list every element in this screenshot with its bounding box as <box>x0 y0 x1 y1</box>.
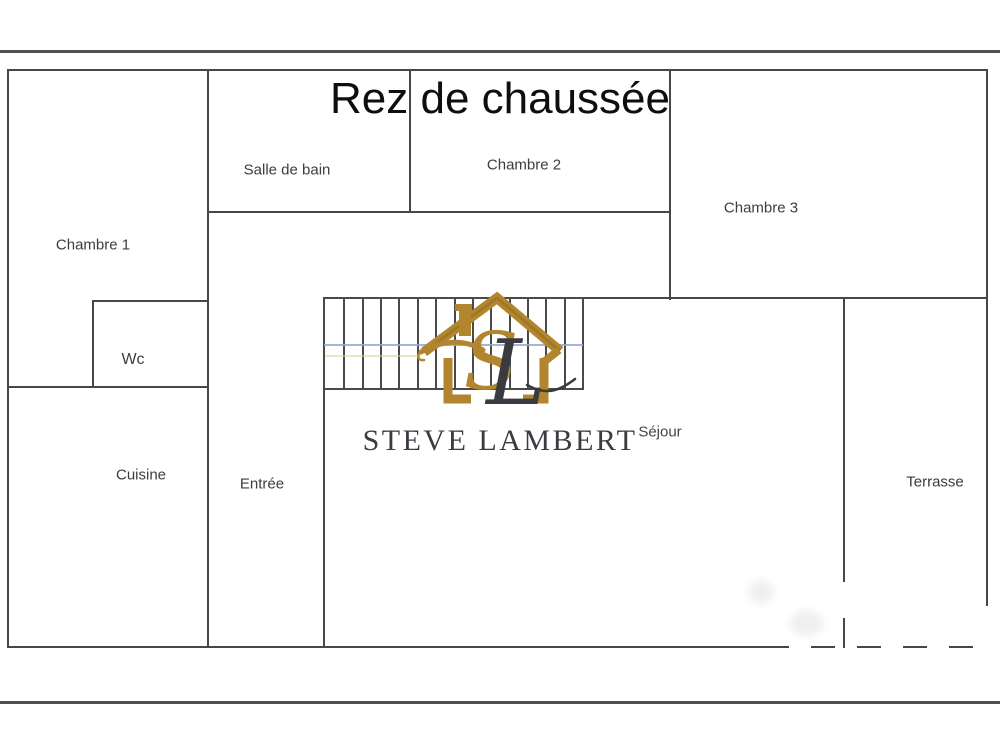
wall-sejour-terrasse-lower <box>843 618 845 648</box>
wall-sdb-bottom <box>207 211 671 213</box>
room-label-chambre-2: Chambre 2 <box>487 157 561 174</box>
wall-chambre1-right <box>207 69 209 648</box>
page-title: Rez de chaussée <box>330 74 670 124</box>
room-label-salle-de-bain: Salle de bain <box>244 162 331 179</box>
brand-name: STEVE LAMBERT <box>363 424 638 458</box>
wall-cuisine-top <box>7 386 209 388</box>
wall-outer-bottom <box>7 646 765 648</box>
wall-chambre3-bottom <box>583 297 988 299</box>
wall-outer-left <box>7 69 9 648</box>
wall-chambre2-chambre3 <box>669 69 671 300</box>
wall-sdb-chambre2 <box>409 69 411 213</box>
room-label-sejour: Séjour <box>638 424 681 441</box>
faded-watermark-blob <box>748 580 774 604</box>
house-logo-icon: S L <box>393 288 607 418</box>
floor-plan-page: Rez de chaussée S L <box>0 0 1000 753</box>
bottom-divider-line <box>0 701 1000 704</box>
room-label-chambre-3: Chambre 3 <box>724 200 798 217</box>
wall-sejour-terrasse-upper <box>843 299 845 582</box>
wall-wc-top <box>92 300 209 302</box>
room-label-terrasse: Terrasse <box>906 474 964 491</box>
monogram-l: L <box>484 321 546 418</box>
wall-outer-top <box>7 69 988 71</box>
faded-watermark-blob <box>790 610 824 636</box>
room-label-chambre-1: Chambre 1 <box>56 237 130 254</box>
room-label-cuisine: Cuisine <box>116 467 166 484</box>
top-divider-line <box>0 50 1000 53</box>
wall-wc-left <box>92 300 94 388</box>
room-label-wc: Wc <box>121 351 144 369</box>
wall-outer-bottom-dashed <box>765 646 988 648</box>
room-label-entree: Entrée <box>240 476 284 493</box>
wall-outer-right <box>986 69 988 606</box>
